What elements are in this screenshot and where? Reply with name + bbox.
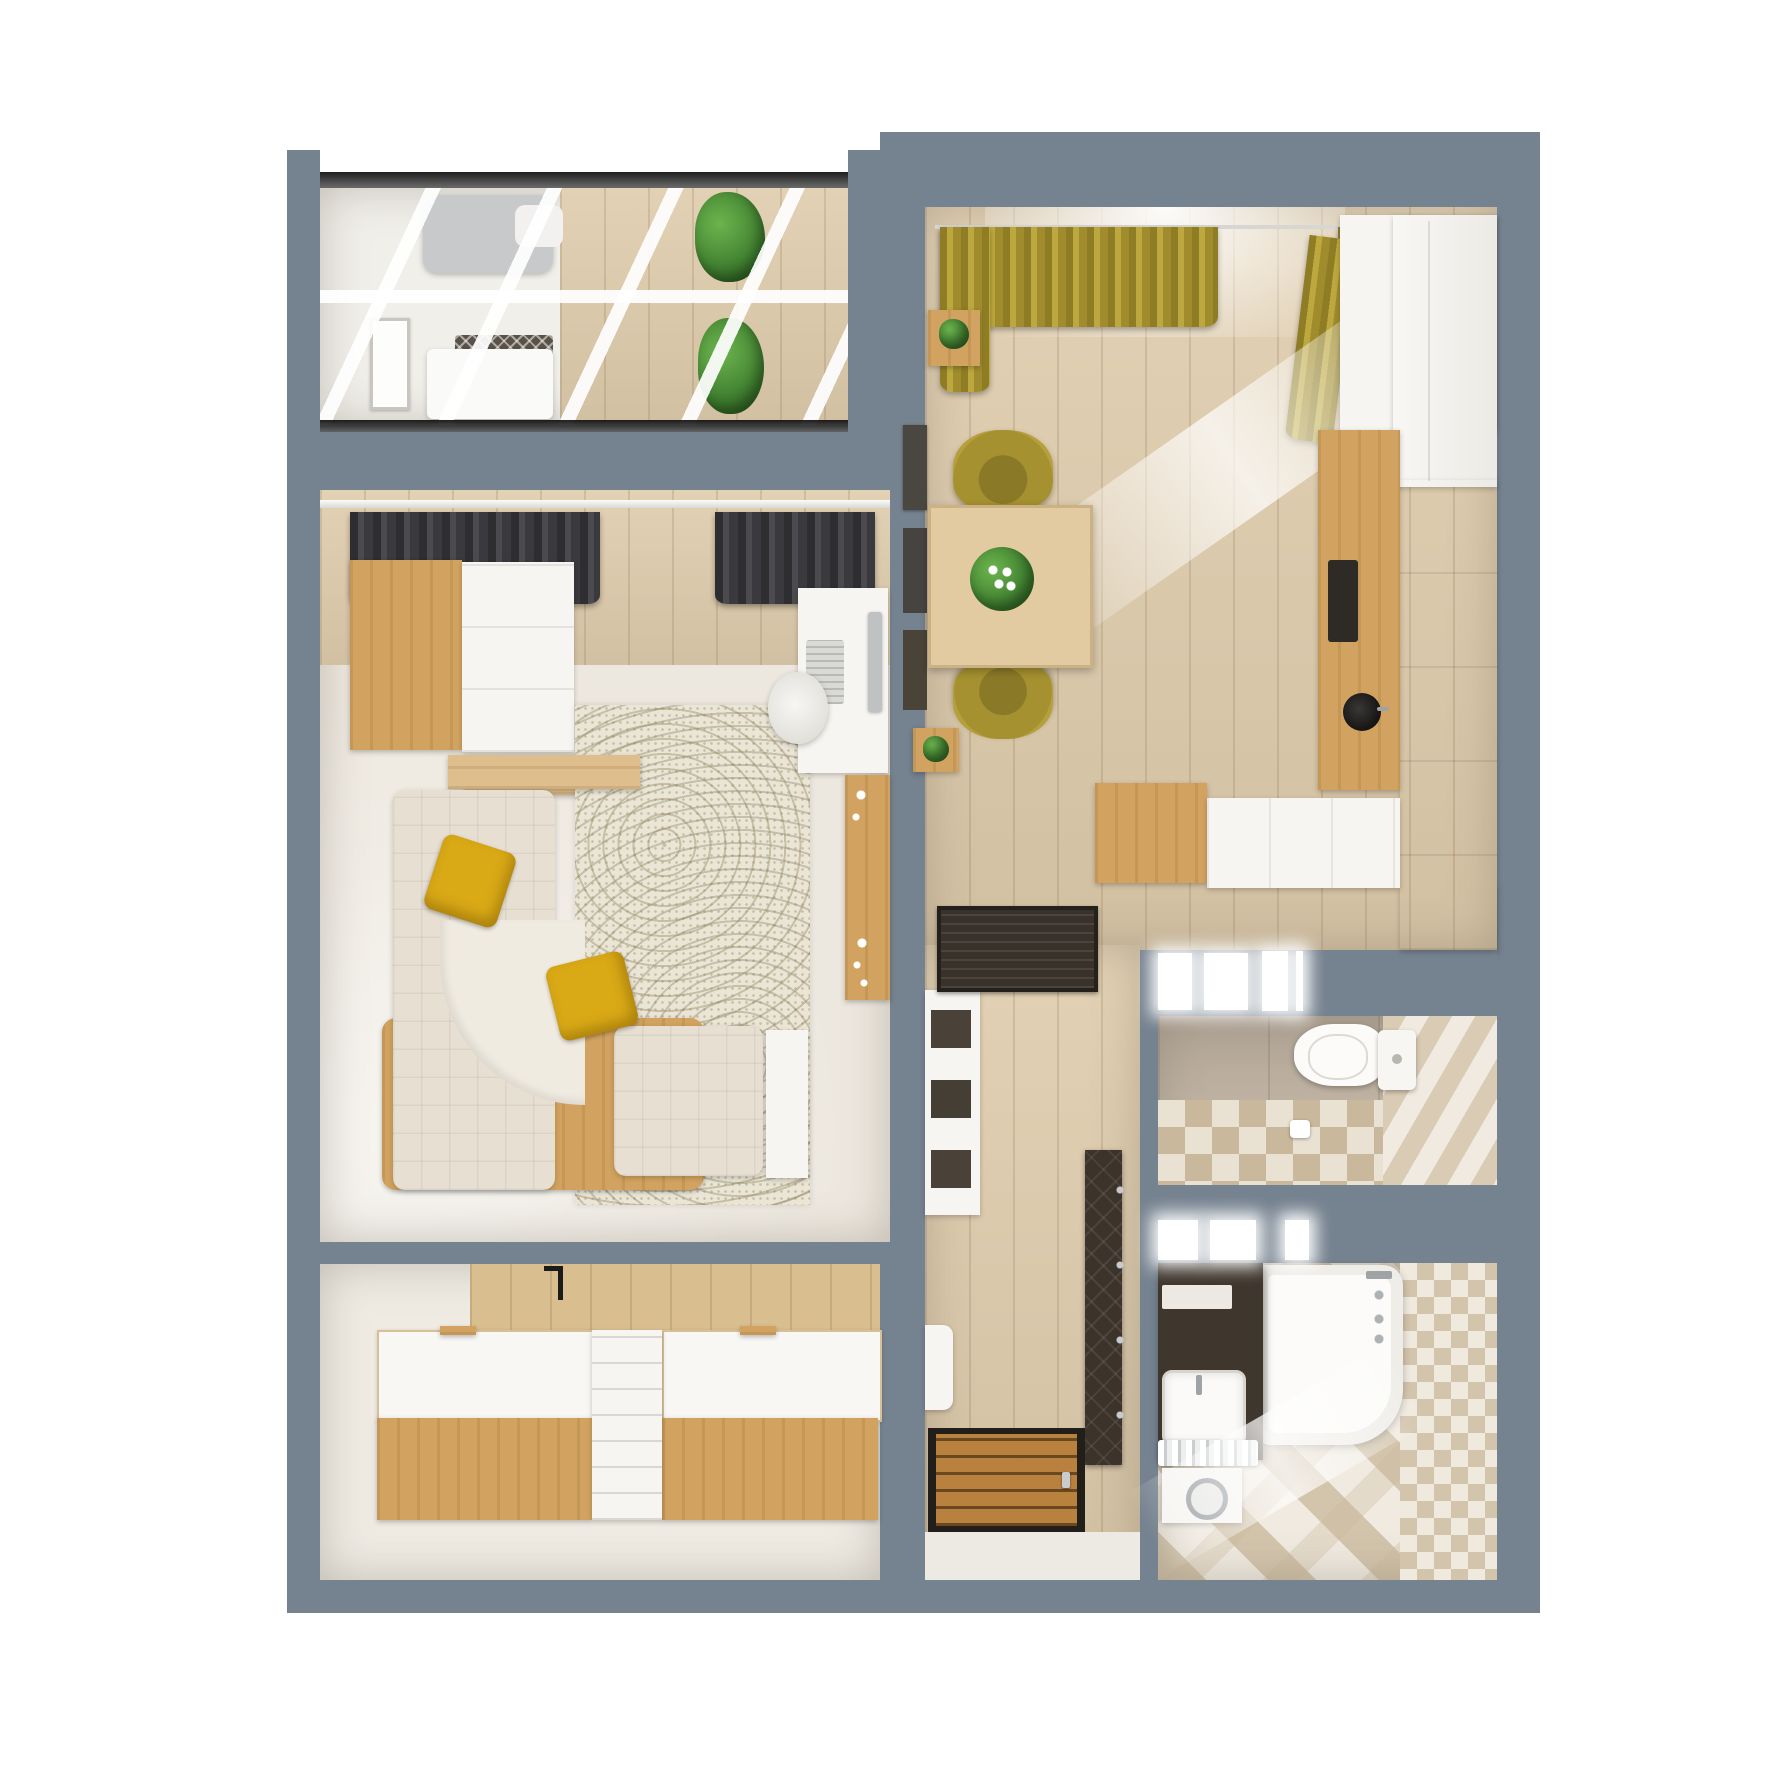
wall-outer-right-lower [1497, 980, 1540, 1613]
glass-roof-mullions [320, 187, 848, 425]
kitchen-doormat [937, 906, 1098, 992]
sideboard-candles [850, 785, 872, 995]
bed-left-front [377, 1418, 592, 1520]
desk-chair [768, 672, 828, 744]
wall-frame-3 [903, 630, 927, 710]
toilet-transom-window-2 [1204, 953, 1248, 1010]
flower-bouquet-blooms [985, 562, 1019, 596]
balcony-glazing-top [320, 172, 848, 188]
shelf-cubby-3 [931, 1150, 971, 1188]
bedroom-room [320, 1264, 880, 1580]
armchair-section [614, 1026, 763, 1176]
cooktop [1328, 560, 1358, 642]
bathroom-transom-window-1 [1158, 1220, 1198, 1260]
sofa-side-table [766, 1030, 808, 1178]
wall-frame-1 [903, 425, 927, 510]
balcony-glass-wall [320, 500, 890, 508]
fridge-cabinet [1393, 215, 1497, 487]
balcony-glazing-bottom [320, 420, 848, 432]
toilet-room [1158, 1016, 1497, 1185]
wardrobe-wood-side [350, 560, 462, 750]
balcony-room [320, 187, 848, 425]
bathroom-transom-window-2 [1210, 1220, 1256, 1260]
kitchen-wood-sideboard [1095, 783, 1207, 883]
wall-outer-left [287, 424, 320, 1613]
wall-frame-2 [903, 528, 927, 613]
exterior-landing-strip [925, 1532, 1140, 1580]
sofa-wood-top-rail [448, 755, 640, 789]
wall-living-bedroom [287, 1242, 900, 1264]
wall-toilet-top-band [1140, 950, 1497, 1016]
kitchen-cabinet-run [1400, 480, 1497, 950]
bath-mixer-dots [1364, 1285, 1394, 1345]
floor-plan-canvas [0, 0, 1776, 1776]
bed-right-top [662, 1330, 882, 1422]
glass-roof-rail [320, 290, 848, 303]
wall-outer-bottom [287, 1580, 1540, 1613]
bath-faucet [1366, 1271, 1392, 1279]
dining-chair-top [953, 430, 1053, 510]
wall-balcony-bottom [287, 424, 880, 490]
dining-chair-bottom [953, 662, 1053, 739]
plant-on-table-upper [939, 319, 969, 349]
bathroom-transom-window-3 [1285, 1220, 1309, 1260]
kitchen-white-sideboard [1207, 798, 1400, 888]
plant-on-table-lower [923, 736, 949, 762]
toilet-transom-window-1 [1158, 953, 1192, 1010]
toilet-checker-floor [1158, 1100, 1385, 1185]
wood-panel-headboard-wall [470, 1264, 880, 1330]
bed-right-front [662, 1418, 878, 1520]
shoe-bench [925, 1325, 953, 1410]
shelf-cubby-1 [931, 1010, 971, 1048]
living-room [320, 490, 890, 1242]
wall-kitchen-right [1497, 132, 1540, 980]
hallway-room [925, 945, 1140, 1580]
bed-left-top [377, 1330, 596, 1422]
sink-tap [1196, 1375, 1202, 1395]
bed-right-handle [740, 1326, 776, 1335]
bed-left-handle [440, 1326, 476, 1335]
kitchen-room [925, 207, 1497, 950]
wall-kitchen-top [880, 132, 1540, 207]
fridge-panel-groove [1428, 221, 1430, 481]
vanity-shelf [1162, 1285, 1232, 1309]
entrance-door [936, 1434, 1077, 1526]
shelf-cubby-2 [931, 1080, 971, 1118]
wardrobe-white-front [462, 562, 574, 752]
cistern-button [1392, 1054, 1402, 1064]
toilet-paper-roll [1290, 1120, 1310, 1138]
kitchen-sink-tap [1377, 707, 1389, 711]
bathroom-room [1158, 1263, 1497, 1580]
kitchen-round-sink [1343, 693, 1381, 731]
wall-lamp-arm [544, 1266, 558, 1271]
door-handle [1062, 1472, 1070, 1488]
bed-divider-shelf [592, 1330, 662, 1520]
toilet-transom-window-3 [1262, 951, 1288, 1011]
toilet-seat-line [1308, 1034, 1368, 1080]
coat-hooks [1115, 1175, 1125, 1435]
monitor [868, 612, 882, 712]
wall-lamp [558, 1266, 563, 1300]
toilet-transom-window-4 [1296, 951, 1303, 1011]
